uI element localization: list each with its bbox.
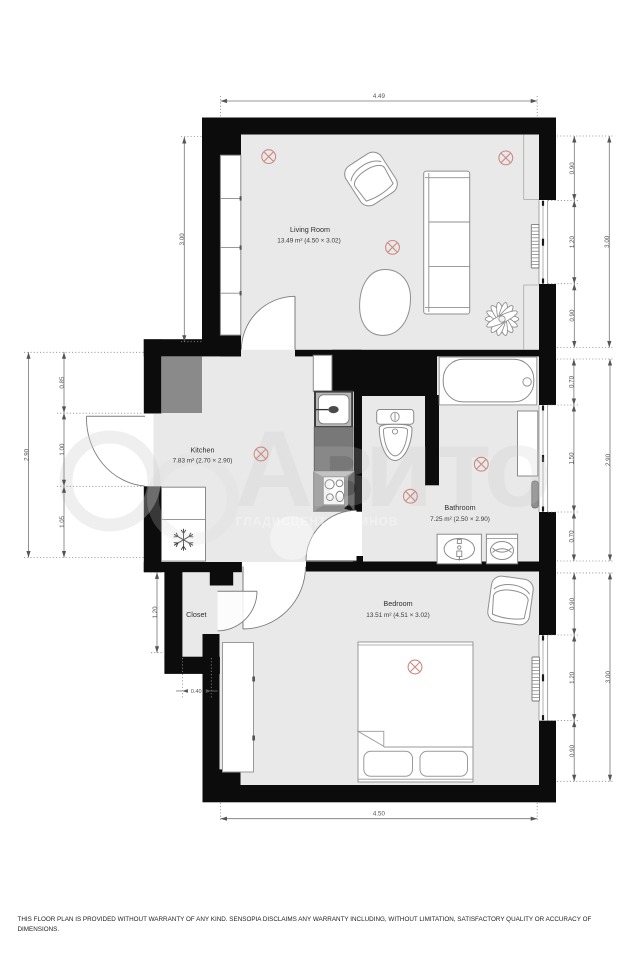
svg-text:7.25 m² (2.50 × 2.90): 7.25 m² (2.50 × 2.90) — [430, 516, 490, 523]
svg-text:Bedroom: Bedroom — [383, 599, 412, 608]
svg-text:4.49: 4.49 — [373, 93, 386, 100]
svg-text:THIS FLOOR PLAN IS PROVIDED WI: THIS FLOOR PLAN IS PROVIDED WITHOUT WARR… — [18, 916, 592, 923]
svg-text:ГЛАДИСЦЕНТ САЛИНОВ: ГЛАДИСЦЕНТ САЛИНОВ — [236, 517, 398, 529]
svg-text:7.83 m² (2.70 × 2.90): 7.83 m² (2.70 × 2.90) — [173, 457, 233, 464]
svg-text:и: и — [365, 405, 434, 530]
svg-text:0.90: 0.90 — [569, 309, 576, 322]
svg-text:13.49 m² (4.50 × 3.02): 13.49 m² (4.50 × 3.02) — [277, 238, 340, 245]
svg-text:0.70: 0.70 — [569, 375, 576, 388]
svg-text:Bathroom: Bathroom — [444, 503, 475, 512]
svg-text:1.20: 1.20 — [152, 606, 159, 619]
svg-text:1.20: 1.20 — [569, 236, 576, 249]
svg-text:Kitchen: Kitchen — [191, 445, 215, 454]
svg-text:2.90: 2.90 — [605, 453, 612, 466]
svg-text:Closet: Closet — [186, 610, 206, 619]
svg-text:0.85: 0.85 — [59, 376, 66, 389]
svg-text:1.20: 1.20 — [569, 671, 576, 684]
svg-text:3.00: 3.00 — [179, 233, 186, 246]
svg-text:1.00: 1.00 — [59, 443, 66, 456]
svg-text:0.40: 0.40 — [191, 689, 202, 695]
svg-text:А: А — [235, 408, 313, 529]
svg-text:0.90: 0.90 — [569, 597, 576, 610]
svg-text:Living Room: Living Room — [290, 225, 330, 234]
svg-text:0.90: 0.90 — [569, 744, 576, 757]
svg-text:3.00: 3.00 — [605, 671, 612, 684]
svg-text:13.51 m² (4.51 × 3.02): 13.51 m² (4.51 × 3.02) — [366, 612, 429, 619]
svg-text:3.00: 3.00 — [604, 235, 611, 248]
svg-text:1.05: 1.05 — [59, 515, 66, 528]
svg-text:1.50: 1.50 — [569, 452, 576, 465]
svg-text:о: о — [484, 405, 552, 530]
svg-text:0.90: 0.90 — [569, 162, 576, 175]
svg-text:0.70: 0.70 — [569, 530, 576, 543]
svg-text:2.90: 2.90 — [23, 448, 30, 461]
svg-text:DIMENSIONS.: DIMENSIONS. — [18, 926, 60, 933]
svg-text:4.50: 4.50 — [373, 811, 386, 818]
